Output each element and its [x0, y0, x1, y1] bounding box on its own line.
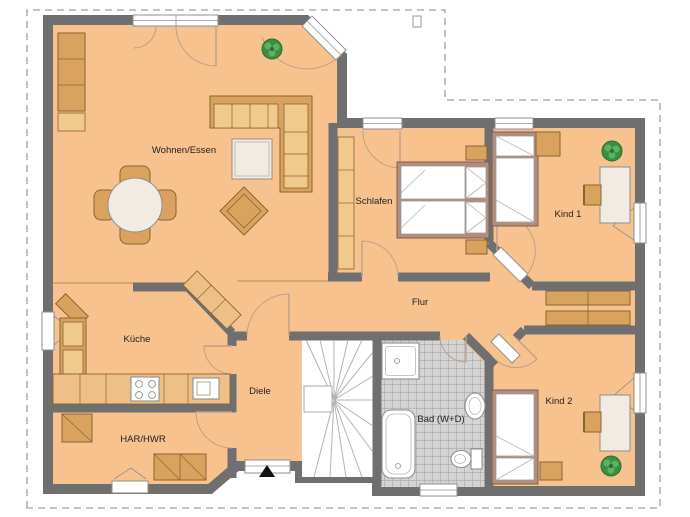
dining-table [108, 178, 162, 232]
stove [131, 377, 159, 401]
plant-icon [601, 456, 621, 476]
room-label-kueche: Küche [124, 334, 151, 345]
plant-icon [262, 39, 282, 59]
room-label-bad: Bad (W+D) [417, 414, 464, 425]
kind2-desk [600, 395, 630, 451]
room-label-diele: Diele [249, 386, 271, 397]
kind1-bed [492, 132, 538, 226]
schlafen-wardrobe [338, 137, 354, 269]
room-label-kind1: Kind 1 [555, 209, 582, 220]
room-label-har: HAR/HWR [120, 434, 166, 445]
kitchen-sink [193, 378, 219, 399]
kind1-desk [600, 167, 630, 223]
shower [382, 343, 419, 379]
plant-icon [602, 141, 622, 161]
kind1-wardrobe [536, 132, 560, 156]
room-label-kind2: Kind 2 [546, 396, 573, 407]
kind2-chair [584, 412, 601, 432]
floorplan-drawing: Wohnen/Essen Schlafen Kind 1 Flur Küche … [0, 0, 690, 517]
nightstand [466, 240, 487, 254]
site-marker [413, 16, 421, 27]
har-cabinet [62, 414, 92, 442]
entry-door [245, 460, 290, 477]
kind2-bed [492, 390, 538, 484]
floorplan-page: Wohnen/Essen Schlafen Kind 1 Flur Küche … [0, 0, 690, 517]
nightstand [466, 146, 487, 160]
room-label-wohnen: Wohnen/Essen [152, 145, 216, 156]
double-bed [397, 162, 489, 238]
room-label-flur: Flur [412, 297, 428, 308]
kind1-top-window [495, 118, 533, 129]
room-label-schlafen: Schlafen [356, 196, 393, 207]
kind1-chair [584, 185, 601, 205]
kitchen-counter [53, 374, 230, 404]
toilet [451, 449, 482, 469]
washer-dryer [154, 454, 206, 480]
sideboard [58, 33, 85, 131]
coffee-table [232, 139, 272, 179]
kind2-nightstand [540, 462, 562, 480]
sink [465, 393, 485, 419]
bathtub [382, 410, 415, 478]
bad-window [420, 484, 457, 496]
